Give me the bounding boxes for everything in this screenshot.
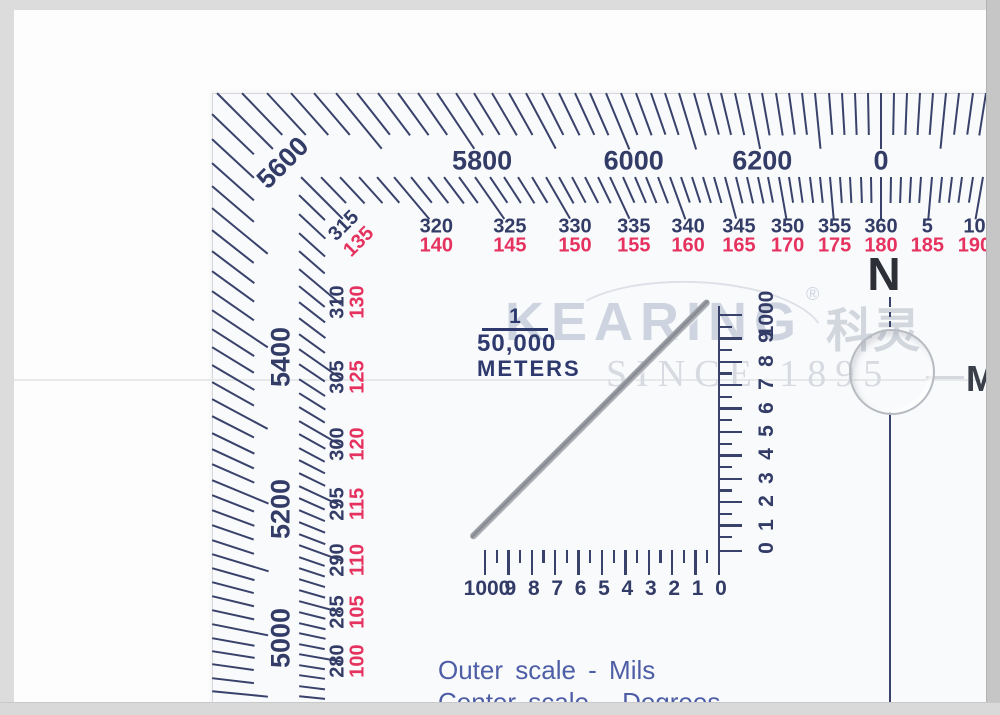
meter-tick-horizontal [589, 550, 591, 563]
degree-tick [880, 177, 882, 219]
meter-number-horizontal: 5 [598, 577, 610, 601]
meter-tick-vertical [720, 431, 742, 433]
meter-tick-vertical [720, 536, 732, 538]
degree-tick [889, 177, 892, 203]
photo-frame-bottom [0, 702, 1000, 715]
mils-label: 5800 [452, 146, 512, 177]
meter-number-horizontal: 2 [668, 577, 680, 601]
meter-tick-horizontal [542, 550, 544, 563]
meter-tick-horizontal [577, 550, 579, 575]
fraction-denominator: 50,000 [477, 331, 553, 357]
photo-frame-top [0, 0, 1000, 10]
meter-tick-vertical [720, 396, 732, 398]
degree-label-red: 145 [493, 235, 526, 258]
meter-number-horizontal: 4 [622, 577, 634, 601]
meter-number-vertical: 5 [755, 425, 779, 437]
meter-tick-vertical [720, 524, 742, 526]
meter-number-horizontal: 6 [575, 577, 587, 601]
north-dash [889, 297, 892, 307]
meter-tick-vertical [720, 466, 732, 468]
meter-tick-horizontal [636, 550, 638, 563]
meter-tick-vertical [720, 478, 742, 480]
meter-tick-horizontal [624, 550, 626, 575]
center-hole [849, 329, 935, 415]
mils-label: 6200 [732, 146, 792, 177]
mils-label: 5000 [266, 608, 297, 668]
meter-tick-vertical [720, 361, 742, 363]
meter-scale-spine [718, 306, 721, 575]
degree-tick [860, 177, 863, 203]
meter-number-horizontal: 0 [715, 577, 727, 601]
degree-label-red: 170 [771, 235, 804, 258]
degree-label-red: 155 [617, 235, 650, 258]
north-dash [889, 321, 892, 327]
meter-tick-horizontal [566, 550, 568, 563]
meter-number-horizontal: 9 [505, 577, 517, 601]
meter-tick-vertical [720, 314, 742, 316]
meter-number-vertical: 7 [755, 378, 779, 390]
ruler-photo: KEARING ® 科灵 SINCE 1895 5800600062000560… [0, 0, 1000, 715]
meter-tick-horizontal [484, 550, 486, 575]
meter-tick-vertical [720, 372, 732, 374]
meter-tick-horizontal [683, 550, 685, 563]
mils-tick [880, 93, 882, 149]
north-reference-line [889, 412, 892, 702]
degree-label-red: 150 [558, 235, 591, 258]
mils-label: 6000 [604, 146, 664, 177]
meter-tick-horizontal [648, 550, 650, 575]
degree-label-red: 160 [671, 235, 704, 258]
meter-tick-horizontal [694, 550, 696, 575]
meter-number-horizontal: 1 [692, 577, 704, 601]
mils-label: 0 [873, 146, 888, 177]
meter-tick-vertical [720, 407, 742, 409]
meter-tick-horizontal [671, 550, 673, 575]
degree-label-red: 110 [347, 544, 370, 576]
meter-number-vertical: 8 [755, 355, 779, 367]
degree-label-red: 165 [722, 235, 755, 258]
degree-label-red: 100 [347, 645, 370, 678]
degree-tick [870, 177, 873, 203]
north-letter: N [867, 247, 900, 301]
meter-tick-vertical [720, 337, 742, 339]
meter-number-horizontal: 7 [551, 577, 563, 601]
meter-number-vertical: 0 [755, 542, 779, 554]
meter-tick-vertical [720, 349, 732, 351]
degree-label-red: 105 [347, 595, 370, 628]
meter-tick-vertical [720, 384, 742, 386]
mils-tick [867, 93, 870, 135]
meter-scale-corner [719, 550, 742, 553]
meter-tick-vertical [720, 513, 732, 515]
meter-tick-vertical [720, 326, 732, 328]
degree-label-red: 125 [347, 361, 370, 394]
degree-label-red: 130 [347, 286, 370, 319]
degree-label-red: 115 [347, 488, 370, 520]
meter-number-vertical: 1000 [755, 291, 779, 338]
meter-tick-horizontal [613, 550, 615, 563]
fraction-unit: METERS [477, 357, 553, 381]
degree-label-red: 175 [818, 235, 851, 258]
caption-outer-scale: Outer scale - Mils [438, 655, 655, 686]
meter-tick-vertical [720, 443, 732, 445]
meter-tick-vertical [720, 489, 732, 491]
meter-number-vertical: 2 [755, 495, 779, 507]
meter-tick-horizontal [554, 550, 556, 575]
meter-number-horizontal: 1000 [464, 577, 511, 601]
meter-number-vertical: 6 [755, 402, 779, 414]
meter-tick-horizontal [659, 550, 661, 563]
north-dash [889, 312, 892, 317]
photo-frame-right [986, 0, 1000, 715]
meter-tick-horizontal [496, 550, 498, 563]
degree-label-red: 185 [911, 235, 944, 258]
meter-number-vertical: 4 [755, 449, 779, 461]
meter-tick-horizontal [531, 550, 533, 575]
meter-number-vertical: 1 [755, 519, 779, 531]
registered-trademark-icon: ® [806, 284, 819, 305]
meter-tick-vertical [720, 501, 742, 503]
meter-tick-horizontal [706, 550, 708, 563]
meter-tick-vertical [720, 454, 742, 456]
meter-number-horizontal: 3 [645, 577, 657, 601]
meter-number-vertical: 3 [755, 472, 779, 484]
meter-tick-vertical [720, 419, 732, 421]
meter-tick-horizontal [601, 550, 603, 575]
map-scale-fraction: 1 50,000 METERS [477, 306, 553, 381]
meter-number-horizontal: 8 [528, 577, 540, 601]
mils-label: 5400 [266, 327, 297, 387]
degree-label-red: 140 [420, 235, 453, 258]
meter-tick-horizontal [519, 550, 521, 563]
mils-label: 5200 [266, 479, 297, 539]
degree-label-red: 120 [347, 427, 370, 460]
photo-frame-left [0, 0, 14, 715]
meter-tick-horizontal [507, 550, 509, 575]
fraction-numerator: 1 [477, 306, 553, 328]
